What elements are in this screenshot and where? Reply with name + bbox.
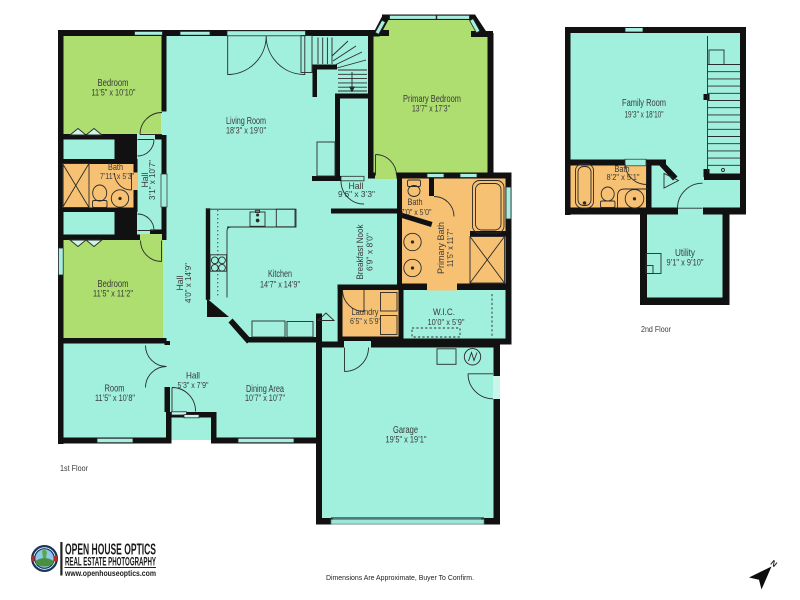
svg-text:www.openhouseoptics.com: www.openhouseoptics.com [64,569,156,578]
svg-text:8’2" x 5’1": 8’2" x 5’1" [607,172,640,182]
svg-text:Kitchen: Kitchen [268,269,292,280]
svg-text:18’3" x 19’0": 18’3" x 19’0" [226,126,266,136]
svg-text:13’7" x 17’3": 13’7" x 17’3" [412,104,450,114]
svg-text:10’7" x 10’7": 10’7" x 10’7" [245,393,285,403]
svg-text:REAL ESTATE PHOTOGRAPHY: REAL ESTATE PHOTOGRAPHY [65,555,156,569]
svg-text:2nd Floor: 2nd Floor [641,324,671,334]
svg-text:3’1" x 10’7": 3’1" x 10’7" [147,160,157,200]
svg-text:9’1" x 9’10": 9’1" x 9’10" [667,258,704,268]
svg-text:Dimensions Are Approximate, Bu: Dimensions Are Approximate, Buyer To Con… [326,573,474,582]
svg-text:14’7" x 14’9": 14’7" x 14’9" [260,280,300,290]
svg-text:7’11" x 5’3": 7’11" x 5’3" [100,171,134,181]
svg-text:10’0" x 5’9": 10’0" x 5’9" [428,317,465,327]
svg-text:19’5" x 19’1": 19’5" x 19’1" [386,435,427,445]
svg-text:7’0" x 5’0": 7’0" x 5’0" [401,207,432,217]
svg-text:9’6" x 3’3": 9’6" x 3’3" [338,189,375,199]
svg-text:11’5" x 10’8": 11’5" x 10’8" [95,393,135,403]
svg-text:5’3" x 7’9": 5’3" x 7’9" [178,380,209,390]
svg-text:19’3" x 18’10": 19’3" x 18’10" [625,110,664,120]
svg-text:11’5" x 11’2": 11’5" x 11’2" [93,289,133,299]
svg-text:6’5" x 5’9": 6’5" x 5’9" [350,316,381,326]
svg-text:6’9" x 8’0": 6’9" x 8’0" [365,233,375,271]
svg-text:4’0" x 14’9": 4’0" x 14’9" [183,263,193,303]
svg-text:1st Floor: 1st Floor [60,463,88,473]
svg-text:Family Room: Family Room [622,98,666,109]
svg-text:11’5" x 10’10": 11’5" x 10’10" [92,88,136,98]
svg-text:11’5" x 11’7": 11’5" x 11’7" [445,229,455,267]
